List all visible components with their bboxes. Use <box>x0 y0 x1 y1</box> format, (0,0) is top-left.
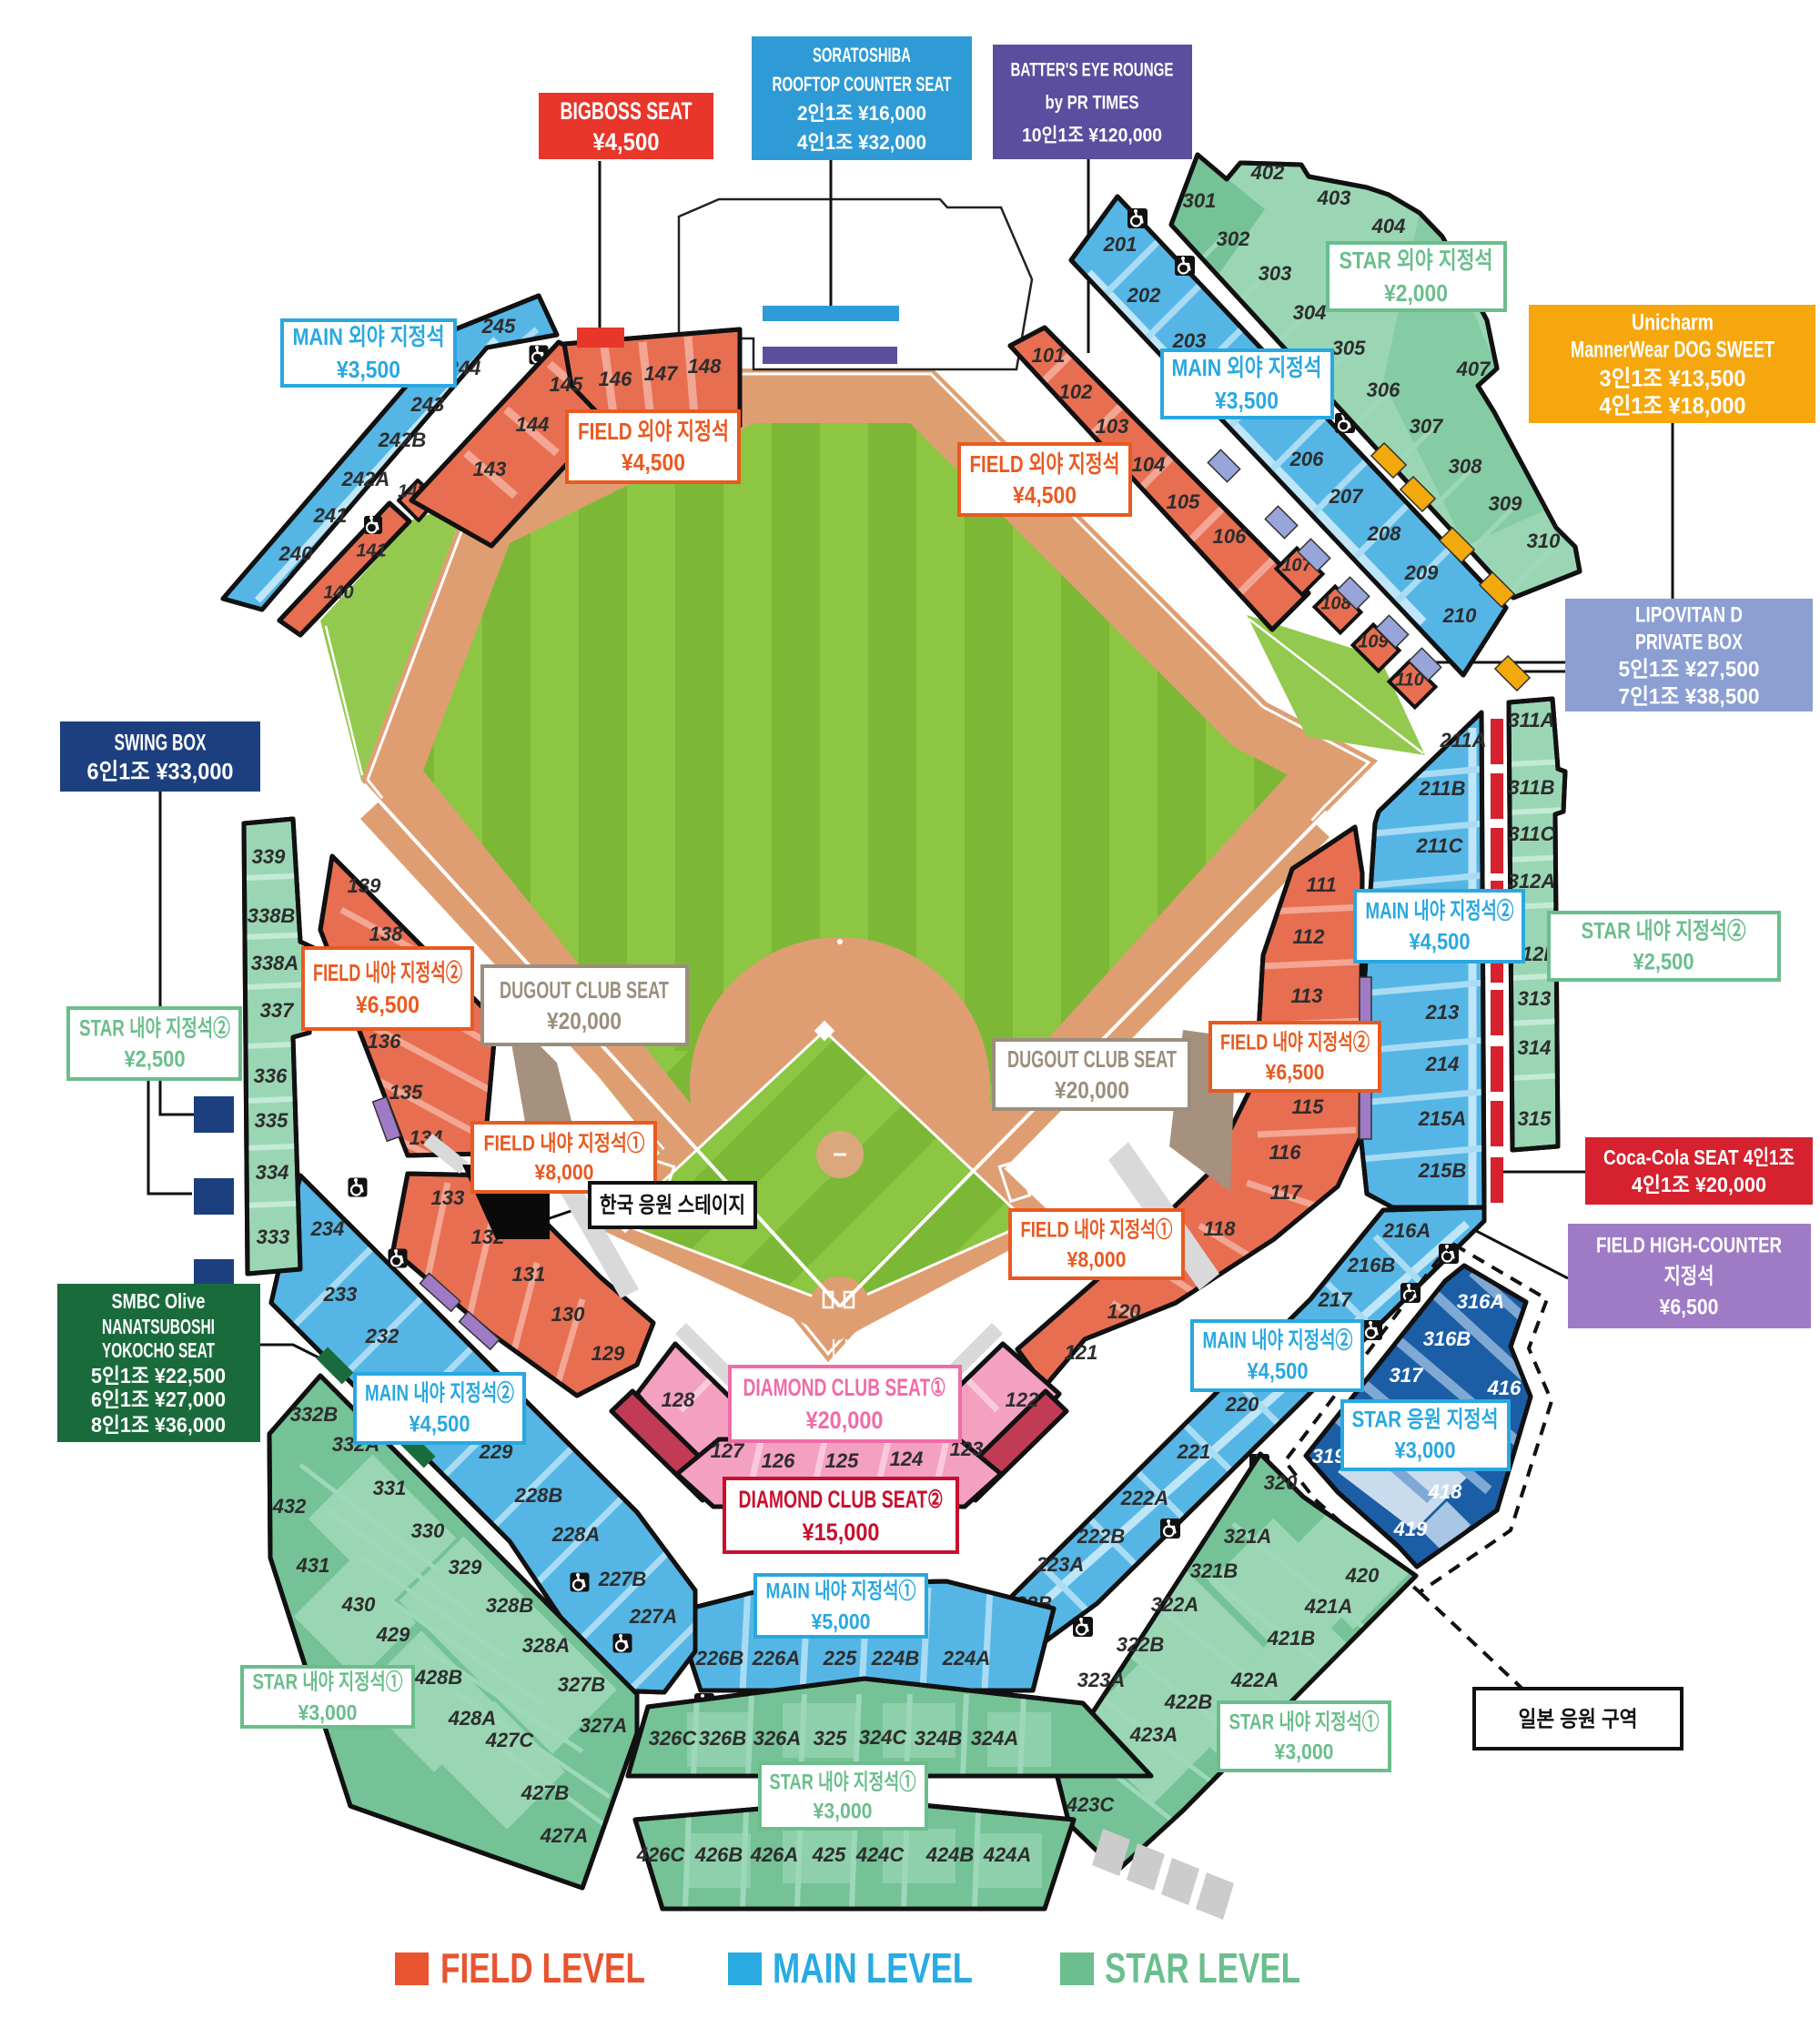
svg-text:427A: 427A <box>540 1824 589 1847</box>
svg-text:241: 241 <box>313 504 348 527</box>
svg-text:308: 308 <box>1449 455 1482 478</box>
svg-text:423A: 423A <box>1129 1723 1178 1746</box>
svg-text:DUGOUT CLUB SEAT: DUGOUT CLUB SEAT <box>1007 1045 1177 1073</box>
svg-text:323A: 323A <box>1077 1669 1126 1691</box>
svg-text:¥3,000: ¥3,000 <box>1395 1438 1456 1464</box>
svg-text:424B: 424B <box>925 1843 975 1866</box>
svg-text:FIELD HIGH-COUNTER: FIELD HIGH-COUNTER <box>1596 1233 1782 1257</box>
svg-text:337: 337 <box>260 999 295 1022</box>
svg-text:220: 220 <box>1225 1393 1259 1416</box>
svg-text:¥2,500: ¥2,500 <box>125 1047 186 1073</box>
svg-text:10인1조 ¥120,000: 10인1조 ¥120,000 <box>1022 126 1162 146</box>
svg-text:139: 139 <box>348 874 381 897</box>
svg-text:136: 136 <box>368 1030 401 1053</box>
svg-text:207: 207 <box>1329 485 1364 508</box>
svg-text:ROOFTOP COUNTER SEAT: ROOFTOP COUNTER SEAT <box>773 73 952 96</box>
svg-text:STAR 내야 지정석②: STAR 내야 지정석② <box>1582 918 1746 944</box>
svg-text:327A: 327A <box>580 1714 628 1737</box>
svg-text:147: 147 <box>644 362 679 385</box>
svg-text:225: 225 <box>823 1647 857 1670</box>
svg-text:125: 125 <box>825 1449 859 1472</box>
svg-text:222A: 222A <box>1120 1487 1169 1509</box>
svg-text:332B: 332B <box>290 1403 339 1426</box>
svg-text:4인1조 ¥32,000: 4인1조 ¥32,000 <box>797 131 926 154</box>
svg-text:315: 315 <box>1518 1107 1552 1130</box>
svg-text:424A: 424A <box>983 1843 1032 1866</box>
svg-text:105: 105 <box>1167 490 1200 513</box>
svg-text:224B: 224B <box>871 1647 920 1670</box>
svg-text:120: 120 <box>1107 1300 1141 1323</box>
svg-text:206: 206 <box>1289 448 1324 470</box>
svg-text:129: 129 <box>591 1342 625 1365</box>
svg-text:226B: 226B <box>695 1647 744 1670</box>
svg-text:¥4,500: ¥4,500 <box>1410 930 1471 955</box>
svg-text:324C: 324C <box>859 1726 908 1749</box>
svg-text:422A: 422A <box>1230 1669 1279 1691</box>
svg-text:209: 209 <box>1404 561 1439 584</box>
svg-text:MAIN 내야 지정석②: MAIN 내야 지정석② <box>365 1380 514 1407</box>
svg-text:338B: 338B <box>248 904 296 927</box>
svg-text:131: 131 <box>512 1263 546 1286</box>
svg-text:424C: 424C <box>855 1843 905 1866</box>
svg-text:5인1조 ¥27,500: 5인1조 ¥27,500 <box>1619 657 1760 681</box>
svg-text:216A: 216A <box>1382 1219 1431 1242</box>
svg-text:PRIVATE BOX: PRIVATE BOX <box>1635 630 1743 654</box>
svg-text:FIELD 내야 지정석②: FIELD 내야 지정석② <box>1220 1029 1370 1054</box>
svg-text:FIELD LEVEL: FIELD LEVEL <box>440 1944 645 1992</box>
svg-text:¥2,000: ¥2,000 <box>1384 279 1448 307</box>
svg-text:430: 430 <box>341 1593 376 1616</box>
svg-text:BIGBOSS SEAT: BIGBOSS SEAT <box>561 97 693 125</box>
svg-text:4인1조 ¥20,000: 4인1조 ¥20,000 <box>1632 1173 1766 1196</box>
svg-text:LIPOVITAN D: LIPOVITAN D <box>1635 602 1743 627</box>
svg-text:311B: 311B <box>1509 776 1555 799</box>
svg-text:223A: 223A <box>1036 1553 1085 1576</box>
svg-text:245: 245 <box>481 315 516 338</box>
svg-text:331: 331 <box>373 1477 407 1499</box>
svg-text:210: 210 <box>1442 604 1477 627</box>
svg-text:234: 234 <box>310 1217 345 1240</box>
svg-text:423C: 423C <box>1066 1793 1116 1816</box>
svg-text:328A: 328A <box>522 1634 571 1657</box>
svg-text:143: 143 <box>473 458 507 480</box>
svg-text:306: 306 <box>1367 378 1400 401</box>
svg-text:302: 302 <box>1217 227 1250 250</box>
svg-text:140: 140 <box>323 582 353 602</box>
svg-text:233: 233 <box>323 1283 358 1306</box>
svg-text:5인1조 ¥22,500: 5인1조 ¥22,500 <box>91 1364 226 1387</box>
svg-text:316B: 316B <box>1423 1327 1471 1350</box>
svg-text:301: 301 <box>1183 189 1217 212</box>
svg-text:141: 141 <box>356 540 386 560</box>
svg-text:¥8,000: ¥8,000 <box>535 1160 594 1185</box>
svg-text:FIELD 내야 지정석②: FIELD 내야 지정석② <box>313 959 462 986</box>
svg-text:321B: 321B <box>1190 1559 1239 1582</box>
svg-text:419: 419 <box>1393 1518 1428 1540</box>
svg-text:104: 104 <box>1132 453 1166 476</box>
svg-text:222B: 222B <box>1077 1525 1126 1548</box>
svg-text:403: 403 <box>1317 187 1351 209</box>
svg-text:NANATSUBOSHI: NANATSUBOSHI <box>102 1315 215 1338</box>
svg-text:111: 111 <box>1306 873 1336 896</box>
svg-text:STAR 외야 지정석: STAR 외야 지정석 <box>1340 247 1493 274</box>
svg-text:FIELD 내야 지정석①: FIELD 내야 지정석① <box>484 1130 645 1155</box>
svg-text:310: 310 <box>1527 530 1561 552</box>
svg-text:146: 146 <box>599 368 632 390</box>
svg-text:DIAMOND CLUB SEAT①: DIAMOND CLUB SEAT① <box>743 1374 946 1401</box>
svg-text:325: 325 <box>814 1727 847 1750</box>
svg-text:322B: 322B <box>1117 1633 1165 1656</box>
svg-text:421B: 421B <box>1267 1627 1316 1650</box>
svg-text:124: 124 <box>890 1448 924 1470</box>
svg-text:202: 202 <box>1127 284 1161 307</box>
svg-text:427B: 427B <box>521 1781 570 1804</box>
svg-text:MAIN 내야 지정석②: MAIN 내야 지정석② <box>1203 1327 1353 1354</box>
svg-text:2인1조 ¥16,000: 2인1조 ¥16,000 <box>797 102 926 125</box>
svg-text:¥5,000: ¥5,000 <box>812 1609 871 1634</box>
svg-text:¥8,000: ¥8,000 <box>1067 1247 1127 1272</box>
svg-text:¥15,000: ¥15,000 <box>803 1518 880 1546</box>
svg-text:STAR LEVEL: STAR LEVEL <box>1105 1944 1300 1992</box>
svg-text:242B: 242B <box>378 429 427 451</box>
svg-text:DUGOUT CLUB SEAT: DUGOUT CLUB SEAT <box>500 976 669 1004</box>
svg-text:MAIN LEVEL: MAIN LEVEL <box>773 1944 973 1992</box>
svg-text:227A: 227A <box>629 1605 678 1628</box>
svg-text:339: 339 <box>252 845 286 868</box>
svg-text:304: 304 <box>1293 301 1327 324</box>
svg-text:BATTER'S EYE ROUNGE: BATTER'S EYE ROUNGE <box>1011 60 1174 81</box>
svg-text:101: 101 <box>1032 344 1066 367</box>
svg-text:MAIN 외야 지정석: MAIN 외야 지정석 <box>1172 354 1322 381</box>
svg-text:316A: 316A <box>1457 1290 1505 1313</box>
svg-text:305: 305 <box>1332 337 1366 359</box>
svg-text:228B: 228B <box>514 1484 563 1507</box>
svg-text:416: 416 <box>1487 1377 1522 1399</box>
svg-text:427C: 427C <box>485 1729 535 1751</box>
svg-text:211A: 211A <box>1440 729 1487 752</box>
svg-text:314: 314 <box>1518 1036 1552 1059</box>
svg-text:FIELD 외야 지정석: FIELD 외야 지정석 <box>578 418 729 445</box>
svg-text:¥4,500: ¥4,500 <box>409 1412 470 1438</box>
svg-text:일본 응원 구역: 일본 응원 구역 <box>1519 1707 1638 1731</box>
svg-text:404: 404 <box>1371 215 1406 237</box>
svg-text:STAR 내야 지정석①: STAR 내야 지정석① <box>253 1669 403 1694</box>
svg-text:335: 335 <box>255 1109 288 1132</box>
svg-text:428A: 428A <box>448 1707 497 1730</box>
svg-text:¥3,000: ¥3,000 <box>1275 1740 1334 1764</box>
svg-text:426B: 426B <box>694 1843 743 1866</box>
svg-text:328B: 328B <box>486 1594 534 1617</box>
svg-text:432: 432 <box>272 1495 307 1518</box>
svg-text:144: 144 <box>516 413 550 436</box>
svg-text:431: 431 <box>296 1554 330 1577</box>
svg-text:¥3,000: ¥3,000 <box>814 1799 873 1823</box>
svg-text:¥4,500: ¥4,500 <box>1013 481 1077 509</box>
svg-text:213: 213 <box>1425 1001 1460 1024</box>
svg-text:311A: 311A <box>1509 709 1555 731</box>
svg-text:303: 303 <box>1259 262 1292 285</box>
svg-text:227B: 227B <box>598 1568 647 1590</box>
svg-text:338A: 338A <box>251 952 299 974</box>
svg-text:by PR TIMES: by PR TIMES <box>1046 93 1139 114</box>
svg-text:DIAMOND CLUB SEAT②: DIAMOND CLUB SEAT② <box>739 1486 944 1513</box>
svg-text:422B: 422B <box>1164 1690 1213 1713</box>
svg-text:429: 429 <box>376 1623 410 1646</box>
svg-text:214: 214 <box>1425 1053 1460 1075</box>
svg-text:426C: 426C <box>636 1843 686 1866</box>
svg-text:216B: 216B <box>1347 1254 1396 1276</box>
svg-text:330: 330 <box>411 1519 445 1542</box>
svg-text:MAIN 내야 지정석①: MAIN 내야 지정석① <box>766 1578 916 1603</box>
svg-text:333: 333 <box>257 1226 290 1248</box>
svg-text:6인1조 ¥33,000: 6인1조 ¥33,000 <box>87 760 234 785</box>
svg-text:7인1조 ¥38,500: 7인1조 ¥38,500 <box>1619 684 1760 709</box>
svg-text:¥4,500: ¥4,500 <box>593 128 660 156</box>
svg-text:SWING BOX: SWING BOX <box>115 731 207 756</box>
svg-text:232: 232 <box>365 1325 399 1347</box>
svg-text:324A: 324A <box>971 1727 1019 1750</box>
svg-text:313: 313 <box>1518 987 1552 1010</box>
svg-text:336: 336 <box>254 1064 288 1087</box>
svg-text:¥20,000: ¥20,000 <box>547 1007 622 1034</box>
svg-text:201: 201 <box>1103 233 1137 256</box>
svg-text:320: 320 <box>1264 1471 1298 1494</box>
svg-text:6인1조 ¥27,000: 6인1조 ¥27,000 <box>91 1387 226 1411</box>
svg-text:113: 113 <box>1290 984 1322 1007</box>
svg-text:STAR 내야 지정석①: STAR 내야 지정석① <box>770 1769 916 1794</box>
svg-text:420: 420 <box>1345 1564 1380 1587</box>
svg-text:¥20,000: ¥20,000 <box>806 1407 884 1434</box>
svg-text:221: 221 <box>1177 1440 1211 1463</box>
svg-text:211B: 211B <box>1419 777 1466 800</box>
svg-text:217: 217 <box>1318 1288 1353 1311</box>
svg-text:¥3,500: ¥3,500 <box>337 356 400 383</box>
svg-text:224A: 224A <box>942 1647 991 1670</box>
svg-text:327B: 327B <box>558 1673 606 1696</box>
svg-text:130: 130 <box>551 1303 585 1326</box>
svg-text:Unicharm: Unicharm <box>1632 310 1714 336</box>
svg-text:145: 145 <box>550 373 583 396</box>
svg-text:426A: 426A <box>750 1843 799 1866</box>
svg-text:STAR 응원 지정석: STAR 응원 지정석 <box>1352 1407 1499 1433</box>
svg-text:8인1조 ¥36,000: 8인1조 ¥36,000 <box>91 1413 226 1437</box>
svg-text:226A: 226A <box>752 1647 801 1670</box>
svg-text:¥4,500: ¥4,500 <box>622 449 685 476</box>
svg-text:126: 126 <box>762 1449 795 1472</box>
svg-text:Coca-Cola SEAT 4인1조: Coca-Cola SEAT 4인1조 <box>1603 1145 1795 1169</box>
svg-text:121: 121 <box>1065 1341 1098 1364</box>
svg-text:326B: 326B <box>699 1727 747 1750</box>
svg-text:421A: 421A <box>1304 1595 1353 1618</box>
svg-text:MAIN 외야 지정석: MAIN 외야 지정석 <box>293 323 445 350</box>
svg-text:MAIN 내야 지정석②: MAIN 내야 지정석② <box>1366 898 1514 924</box>
svg-text:428B: 428B <box>414 1666 463 1689</box>
svg-text:215A: 215A <box>1418 1107 1467 1130</box>
svg-text:425: 425 <box>812 1843 846 1866</box>
svg-text:148: 148 <box>688 355 722 378</box>
svg-text:FIELD 외야 지정석: FIELD 외야 지정석 <box>970 450 1120 478</box>
svg-text:¥6,500: ¥6,500 <box>1266 1060 1325 1085</box>
svg-text:4인1조 ¥18,000: 4인1조 ¥18,000 <box>1600 394 1746 419</box>
svg-text:211C: 211C <box>1416 834 1464 857</box>
svg-text:329: 329 <box>449 1556 482 1579</box>
svg-text:103: 103 <box>1096 415 1129 438</box>
svg-text:¥3,000: ¥3,000 <box>298 1700 358 1725</box>
svg-text:¥6,500: ¥6,500 <box>1660 1295 1719 1319</box>
svg-text:215B: 215B <box>1418 1159 1467 1182</box>
svg-text:128: 128 <box>662 1388 695 1411</box>
svg-text:FIELD 내야 지정석①: FIELD 내야 지정석① <box>1021 1216 1173 1242</box>
svg-text:116: 116 <box>1269 1141 1301 1164</box>
svg-text:243: 243 <box>410 393 445 416</box>
svg-text:118: 118 <box>1203 1217 1236 1240</box>
svg-text:307: 307 <box>1410 415 1444 438</box>
svg-text:334: 334 <box>256 1161 289 1184</box>
svg-text:¥4,500: ¥4,500 <box>1248 1359 1309 1385</box>
svg-text:228A: 228A <box>551 1523 601 1546</box>
svg-text:STAR 내야 지정석①: STAR 내야 지정석① <box>1229 1709 1380 1734</box>
svg-text:지정석: 지정석 <box>1664 1264 1714 1288</box>
svg-text:SORATOSHIBA: SORATOSHIBA <box>813 44 911 66</box>
svg-text:110: 110 <box>1395 670 1424 690</box>
svg-text:MannerWear DOG SWEET: MannerWear DOG SWEET <box>1571 338 1774 363</box>
svg-text:122: 122 <box>1006 1388 1039 1411</box>
svg-text:311C: 311C <box>1509 822 1556 845</box>
svg-text:YOKOCHO SEAT: YOKOCHO SEAT <box>102 1338 215 1362</box>
svg-text:STAR 내야 지정석②: STAR 내야 지정석② <box>79 1015 230 1042</box>
svg-text:102: 102 <box>1059 380 1093 403</box>
svg-text:138: 138 <box>369 923 403 945</box>
svg-text:418: 418 <box>1428 1480 1462 1503</box>
svg-text:309: 309 <box>1489 492 1522 515</box>
svg-text:242A: 242A <box>341 468 390 490</box>
svg-text:402: 402 <box>1250 161 1285 184</box>
svg-text:106: 106 <box>1213 525 1247 548</box>
svg-text:324B: 324B <box>915 1727 963 1750</box>
svg-text:SMBC Olive: SMBC Olive <box>112 1289 206 1313</box>
svg-text:¥20,000: ¥20,000 <box>1055 1076 1129 1104</box>
svg-text:¥2,500: ¥2,500 <box>1633 950 1694 975</box>
svg-text:326C: 326C <box>649 1727 698 1750</box>
svg-text:208: 208 <box>1367 522 1401 545</box>
svg-text:한국 응원 스테이지: 한국 응원 스테이지 <box>600 1193 745 1217</box>
svg-text:240: 240 <box>278 542 313 565</box>
svg-text:326A: 326A <box>753 1727 802 1750</box>
svg-text:407: 407 <box>1456 358 1491 380</box>
svg-text:117: 117 <box>1269 1181 1303 1204</box>
svg-text:317: 317 <box>1390 1364 1424 1387</box>
svg-text:322A: 322A <box>1151 1593 1199 1616</box>
svg-text:3인1조 ¥13,500: 3인1조 ¥13,500 <box>1600 367 1746 392</box>
svg-text:133: 133 <box>431 1186 465 1209</box>
svg-text:321A: 321A <box>1224 1525 1272 1548</box>
svg-text:¥3,500: ¥3,500 <box>1215 387 1279 414</box>
svg-text:115: 115 <box>1291 1095 1324 1118</box>
svg-text:135: 135 <box>389 1081 423 1104</box>
svg-text:¥6,500: ¥6,500 <box>356 991 420 1018</box>
svg-text:112: 112 <box>1292 925 1325 948</box>
